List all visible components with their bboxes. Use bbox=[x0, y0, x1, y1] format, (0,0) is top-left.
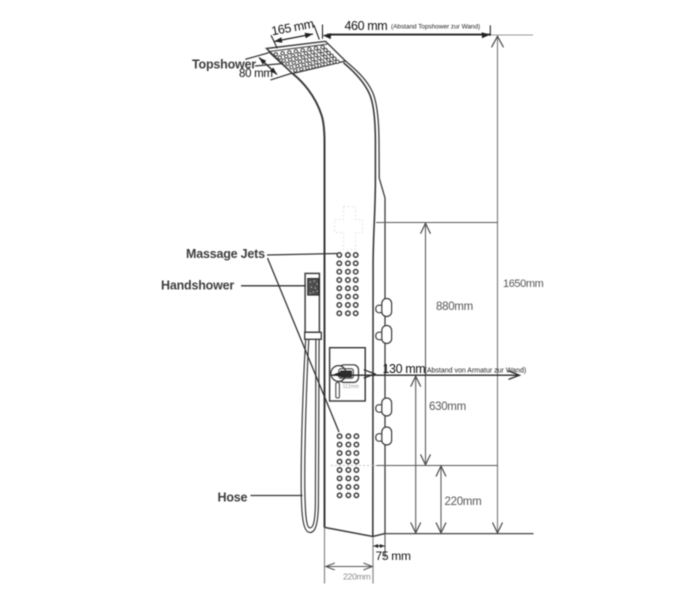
svg-text:75 mm: 75 mm bbox=[376, 549, 411, 563]
svg-text:130 mm: 130 mm bbox=[383, 362, 426, 376]
svg-text:880mm: 880mm bbox=[436, 301, 473, 313]
svg-text:(Abstand Topshower zur Wand): (Abstand Topshower zur Wand) bbox=[391, 24, 480, 31]
svg-text:1650mm: 1650mm bbox=[503, 278, 544, 290]
svg-text:(Abstand von Armatur zur Wand): (Abstand von Armatur zur Wand) bbox=[425, 368, 527, 375]
svg-text:220mm: 220mm bbox=[343, 572, 371, 582]
svg-text:Handshower: Handshower bbox=[161, 279, 234, 293]
svg-text:460 mm: 460 mm bbox=[345, 19, 388, 33]
svg-text:Massage Jets: Massage Jets bbox=[186, 247, 265, 261]
svg-text:Topshower: Topshower bbox=[192, 57, 256, 71]
svg-text:112mm: 112mm bbox=[343, 384, 359, 390]
svg-text:220mm: 220mm bbox=[445, 496, 482, 508]
svg-text:630mm: 630mm bbox=[429, 401, 466, 413]
svg-text:Hose: Hose bbox=[218, 491, 248, 505]
